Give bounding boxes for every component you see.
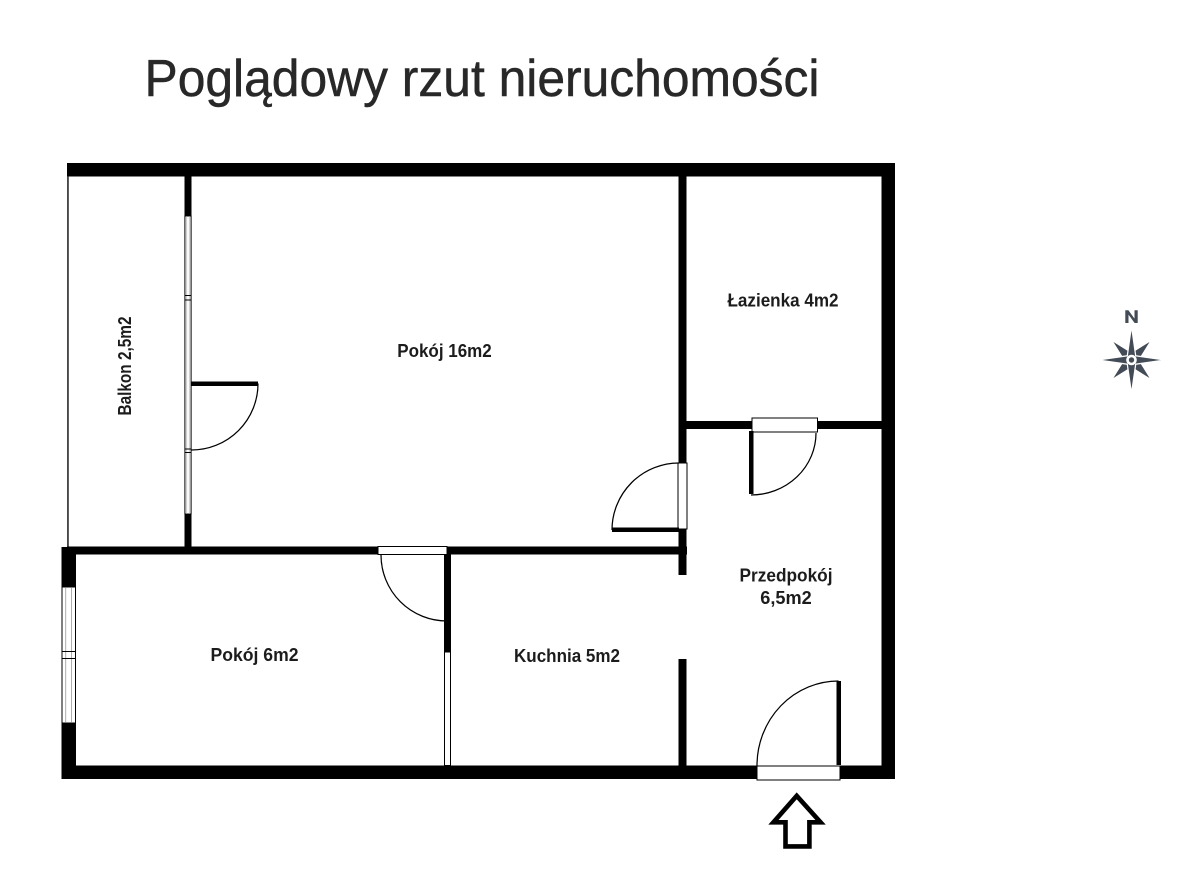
svg-text:Pokój 6m2: Pokój 6m2 [211,645,299,665]
svg-text:Przedpokój: Przedpokój [740,566,833,586]
svg-text:Pokój 16m2: Pokój 16m2 [397,341,492,361]
svg-text:Łazienka 4m2: Łazienka 4m2 [728,291,839,311]
svg-text:Balkon 2,5m2: Balkon 2,5m2 [115,317,135,416]
svg-text:6,5m2: 6,5m2 [760,588,812,608]
svg-text:Kuchnia 5m2: Kuchnia 5m2 [514,646,620,666]
svg-text:Poglądowy rzut nieruchomości: Poglądowy rzut nieruchomości [145,50,820,108]
